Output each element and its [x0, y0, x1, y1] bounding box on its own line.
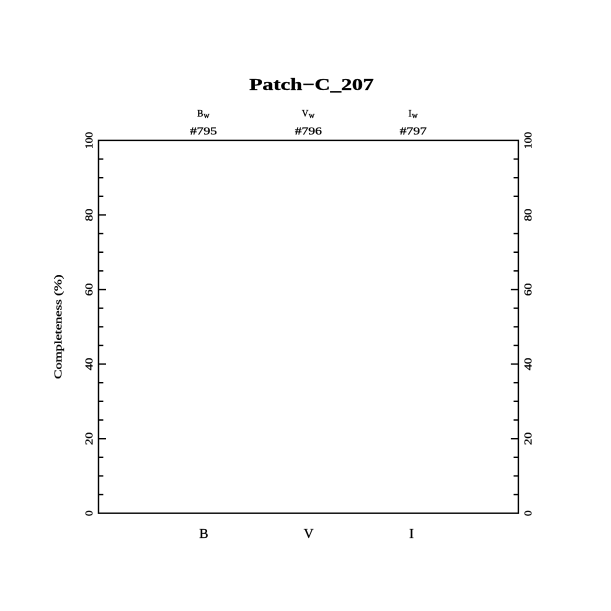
svg-text:#795: #795: [190, 126, 218, 138]
svg-text:40: 40: [523, 357, 535, 370]
svg-text:100: 100: [523, 131, 535, 149]
svg-text:0: 0: [523, 510, 535, 516]
svg-text:0: 0: [84, 510, 96, 516]
svg-text:20: 20: [84, 432, 96, 445]
svg-text:Iw: Iw: [409, 109, 419, 121]
svg-text:80: 80: [523, 208, 535, 221]
svg-text:Vw: Vw: [302, 109, 315, 121]
svg-text:I: I: [409, 526, 414, 541]
svg-text:40: 40: [84, 357, 96, 370]
svg-text:60: 60: [523, 283, 535, 296]
svg-text:100: 100: [84, 131, 96, 149]
svg-text:Completeness (%): Completeness (%): [52, 274, 64, 379]
svg-text:Bw: Bw: [197, 109, 210, 121]
svg-text:#797: #797: [400, 126, 428, 138]
svg-text:80: 80: [84, 208, 96, 221]
svg-text:20: 20: [523, 432, 535, 445]
svg-text:60: 60: [84, 283, 96, 296]
svg-text:#796: #796: [295, 126, 323, 138]
svg-text:V: V: [304, 526, 314, 541]
svg-text:Patch−C_207: Patch−C_207: [249, 75, 374, 94]
svg-text:B: B: [199, 526, 208, 541]
